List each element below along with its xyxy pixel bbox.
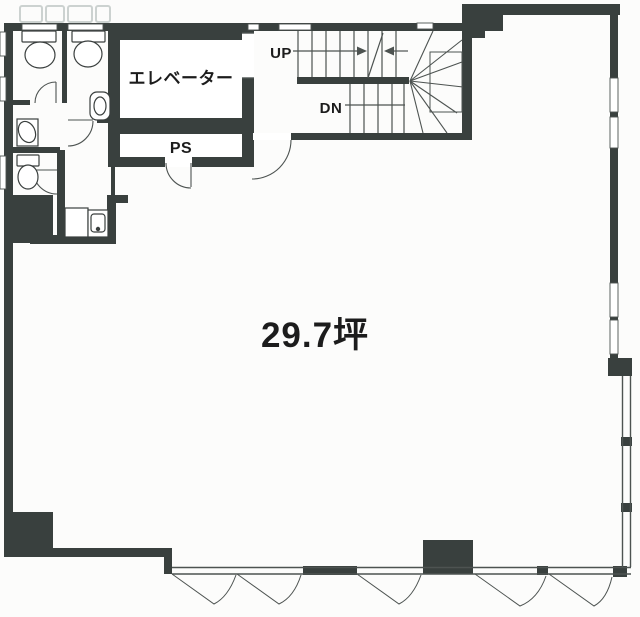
toilet-icon (17, 155, 39, 189)
pipe-shaft-label: PS (170, 140, 192, 157)
sink-counter (65, 208, 108, 237)
vent-stair-3 (417, 23, 433, 29)
wall-bottom-jog (164, 550, 172, 574)
stairs-up-label: UP (270, 45, 292, 62)
vent-wc2 (68, 24, 103, 30)
stair-mid-stringer (297, 77, 409, 84)
vent-stair-2 (279, 24, 311, 30)
stairs-down-label: DN (320, 100, 343, 117)
wall-wc-divider (62, 31, 67, 103)
wall-stair-east (462, 6, 472, 140)
toilet-icon (22, 31, 56, 68)
wall-right-jog (608, 358, 632, 376)
toilet-icon (72, 31, 105, 67)
column-step (485, 15, 503, 31)
right-window-2 (610, 117, 618, 148)
floor-plan-page: エレベーター PS UP DN 29.7坪 (0, 0, 640, 617)
vent-left-2 (0, 77, 6, 101)
urinal-icon (90, 92, 110, 120)
vent-left-3 (0, 156, 6, 189)
wall-stub-d (107, 195, 128, 203)
wall-stub-c (13, 147, 60, 153)
wall-hall-block (242, 133, 254, 167)
wall-bottom-left (53, 548, 172, 557)
floor-plan-drawing: エレベーター PS UP DN 29.7坪 (0, 0, 640, 617)
right-window-1 (610, 78, 618, 112)
right-window-3 (610, 283, 618, 317)
wall-wc-lower-divider (57, 150, 65, 237)
vent-left-1 (0, 32, 6, 56)
wall-stub-a (13, 100, 30, 105)
elevator-label: エレベーター (129, 69, 234, 88)
wall-top-right (462, 4, 620, 15)
wall-left (4, 23, 13, 557)
column-bottom-center (423, 540, 473, 574)
right-window-4 (610, 320, 618, 354)
elevator-door-opening (242, 33, 254, 78)
vent-wc1 (22, 24, 57, 30)
column-bottom-left (5, 512, 53, 557)
vent-stair-1 (248, 24, 259, 30)
floor-area-label: 29.7坪 (261, 316, 369, 355)
hall-door-opening (253, 133, 291, 140)
ps-door-opening (165, 156, 192, 167)
washbasin-icon (15, 119, 39, 146)
